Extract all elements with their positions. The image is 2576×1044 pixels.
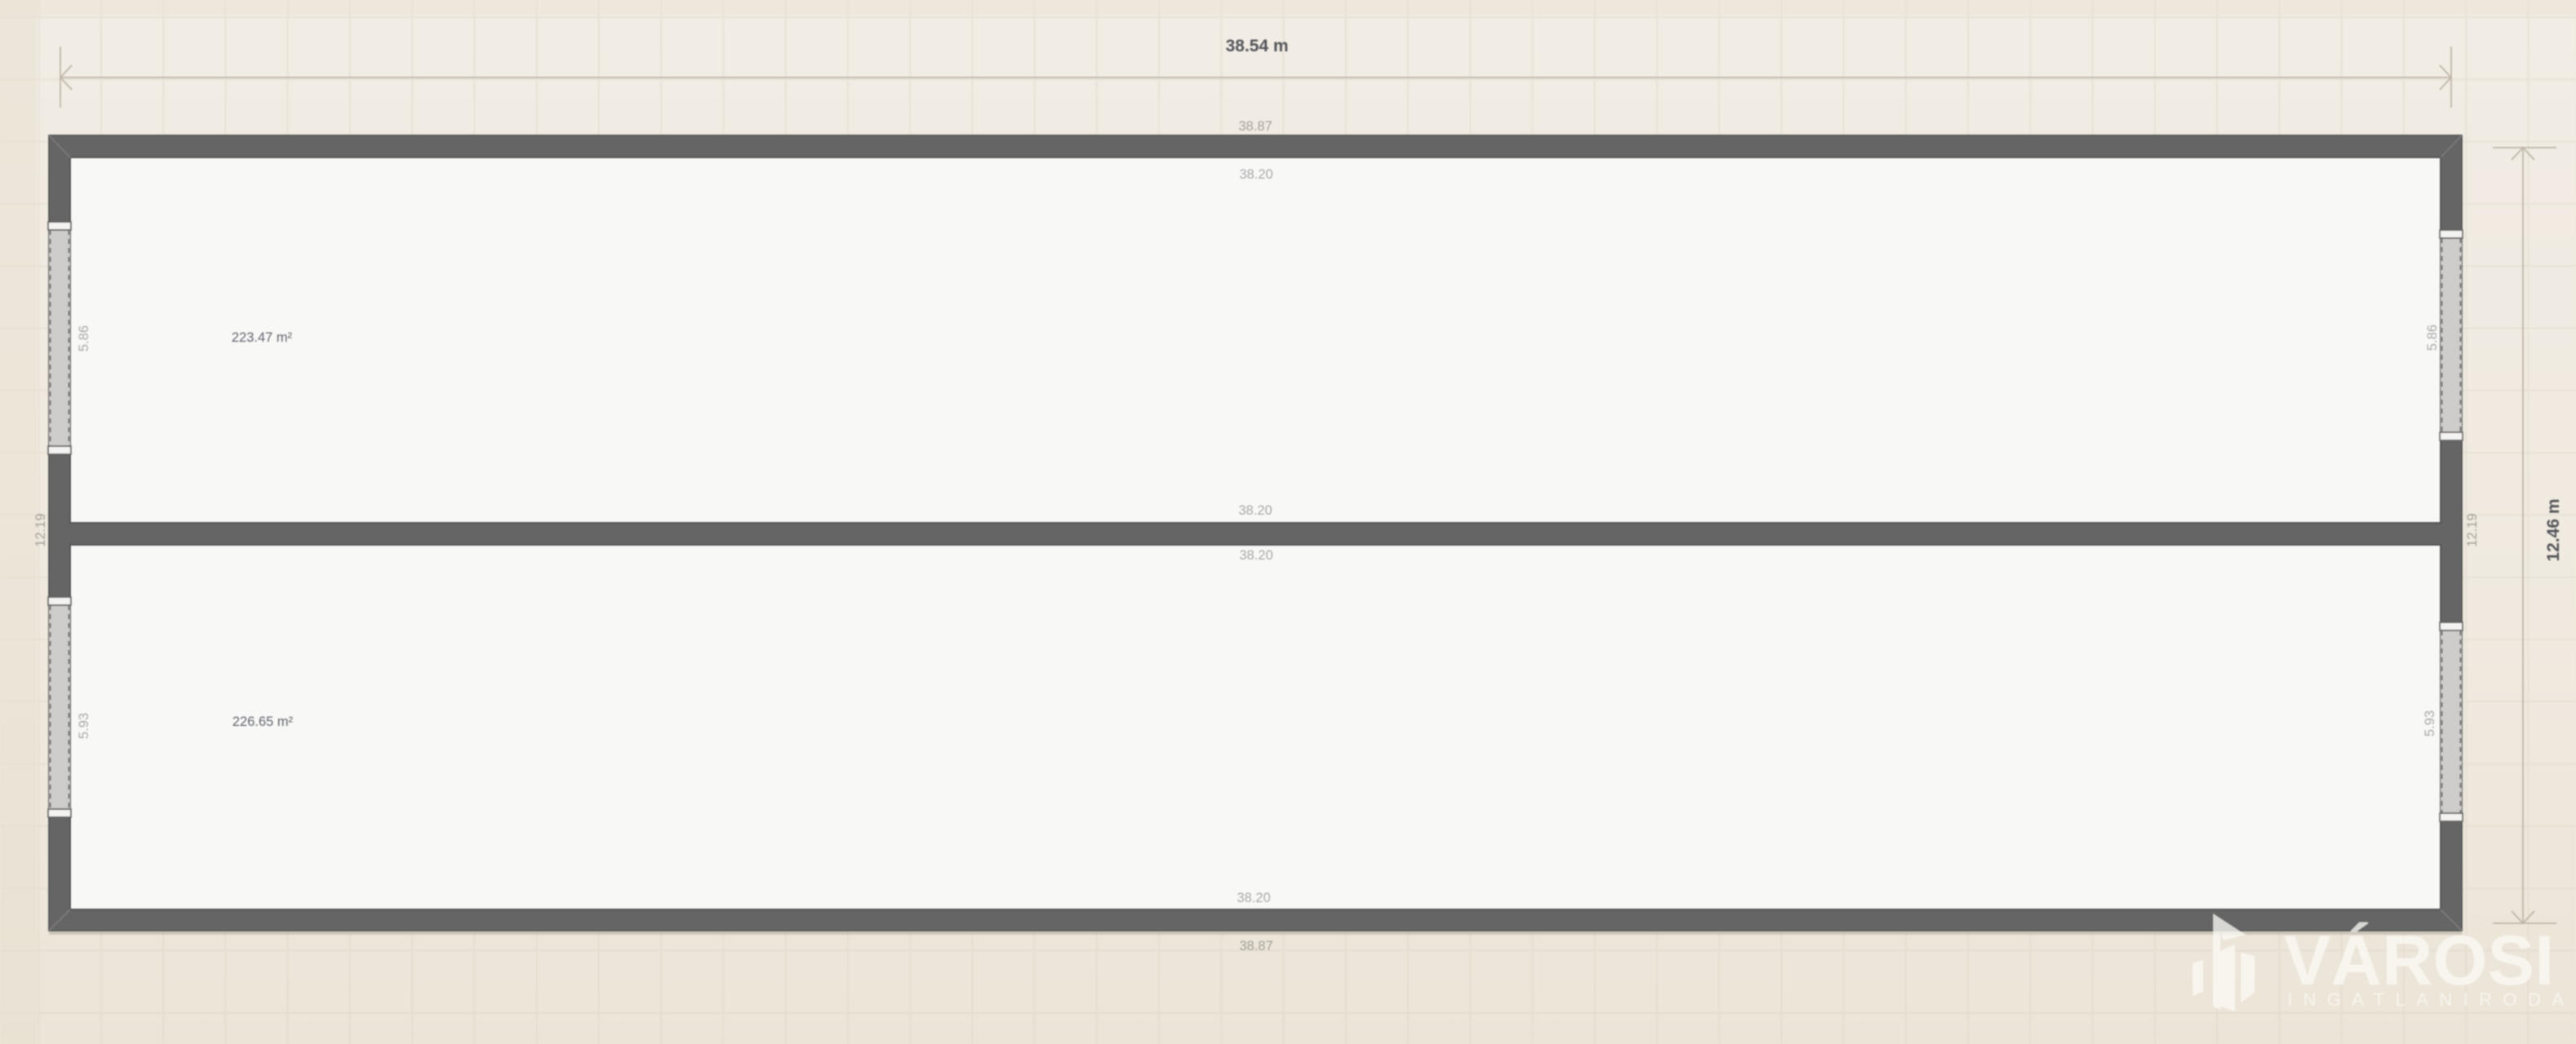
- svg-text:12.19: 12.19: [2465, 513, 2480, 546]
- svg-text:VÁROSI: VÁROSI: [2284, 922, 2555, 1000]
- svg-text:38.20: 38.20: [1239, 548, 1273, 563]
- svg-text:12.19: 12.19: [33, 513, 48, 546]
- svg-text:5.86: 5.86: [2425, 325, 2440, 351]
- svg-text:5.86: 5.86: [77, 325, 91, 352]
- svg-text:38.20: 38.20: [1239, 167, 1273, 182]
- svg-text:12.46 m: 12.46 m: [2544, 498, 2563, 561]
- svg-text:223.47 m²: 223.47 m²: [232, 330, 293, 345]
- svg-text:INGATLANIRODA: INGATLANIRODA: [2287, 989, 2574, 1010]
- svg-text:5.93: 5.93: [77, 713, 91, 739]
- svg-text:38.20: 38.20: [1237, 891, 1270, 905]
- svg-text:226.65 m²: 226.65 m²: [232, 714, 294, 729]
- svg-text:38.87: 38.87: [1239, 939, 1273, 953]
- svg-text:38.87: 38.87: [1238, 119, 1272, 134]
- svg-text:5.93: 5.93: [2423, 710, 2437, 737]
- svg-text:38.54 m: 38.54 m: [1225, 37, 1288, 55]
- svg-text:38.20: 38.20: [1238, 503, 1272, 518]
